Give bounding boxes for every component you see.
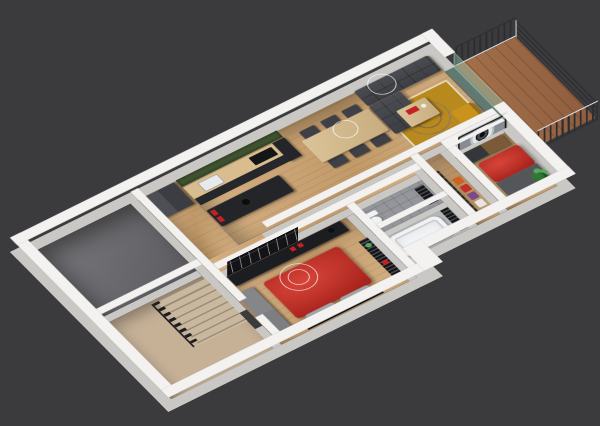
scene-background bbox=[0, 0, 600, 426]
floor-plan-3d bbox=[10, 43, 590, 412]
